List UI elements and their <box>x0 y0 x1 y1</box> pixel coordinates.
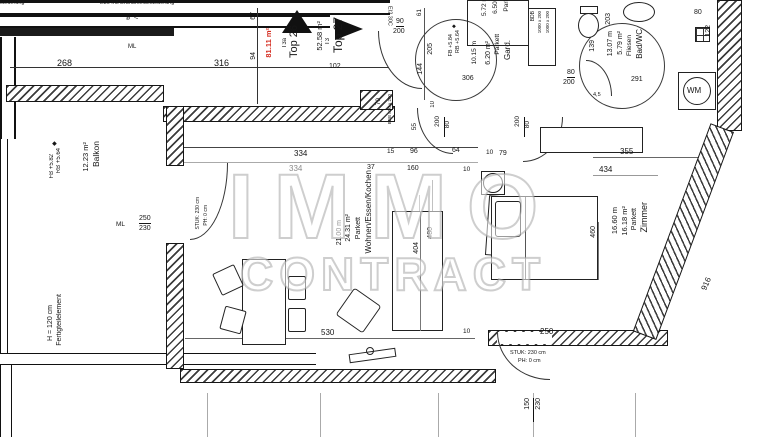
dim: 530 <box>321 329 334 337</box>
unit-top26-area: 81.11 m² <box>265 28 273 58</box>
level-fb-balkon: FB +5.82 <box>49 154 55 179</box>
dim: 79 <box>499 150 507 157</box>
dim: 250 <box>540 328 553 336</box>
note-corner: steuerung <box>0 1 24 7</box>
dim: 334 <box>289 165 302 173</box>
room-gard-perimeter: 10.15 m <box>472 41 479 65</box>
kitchen-sink-bowl <box>483 173 503 193</box>
room-zimmer-name: Zimmer <box>640 202 649 233</box>
room-zimmer-area: 16.18 m² <box>621 206 629 236</box>
dim: 10 <box>463 167 470 174</box>
toilet-icon <box>578 13 599 38</box>
wall-balcony-top <box>6 85 164 102</box>
sink-icon <box>623 2 655 22</box>
room-bad-perimeter: 13.07 m <box>607 31 614 56</box>
level-rb: RB +5.64 <box>456 30 462 53</box>
unit-top27-name: Top 27 <box>332 17 344 53</box>
dim-dropper <box>320 393 321 437</box>
unit-top27-area: 52.58 m² <box>316 21 324 51</box>
dim-line <box>593 175 658 176</box>
floor-plan: E30 mit Brandmeldesteuerung steuerung 26… <box>0 0 770 437</box>
level-diamond: ◆ <box>452 23 457 29</box>
dim: 122 <box>705 25 712 37</box>
note-ml-top: ML <box>128 44 136 50</box>
note-ph-left: PH: 0 cm <box>204 205 209 226</box>
partition-living-zimmer <box>0 365 12 437</box>
room-bad-floor: Fliesen <box>627 35 634 56</box>
kitchen-counter-line <box>420 211 421 331</box>
room-bad-name: Bad/WC <box>636 29 644 59</box>
dim: 67 <box>250 12 257 20</box>
level-fb: FB +5.84 <box>449 34 455 56</box>
dim: 480 <box>427 227 434 239</box>
note-ml-window: ML <box>116 222 125 229</box>
door-opening-bad <box>564 98 592 114</box>
dim: 144 <box>417 63 424 75</box>
bdb-row: 1000 x 200 <box>546 11 551 33</box>
bdb-row: 1000 x 200 <box>538 11 543 33</box>
door-opening-zimmer <box>514 98 542 114</box>
dim: 291 <box>631 76 643 83</box>
room-zimmer-perimeter: 16.60 m <box>611 207 619 234</box>
bed-line <box>525 197 526 279</box>
dim: 316 <box>214 59 229 68</box>
dim-diagonal: 916 <box>700 276 713 291</box>
dim: 306 <box>462 75 474 82</box>
dim: 460 <box>590 226 597 238</box>
chair <box>212 264 244 296</box>
armchair <box>336 288 382 334</box>
unit-top26-name: Top 26 <box>289 25 300 58</box>
wall-left-lower <box>166 243 184 369</box>
dim-window-230: 230 <box>139 225 151 232</box>
dim-window-250: 250 <box>139 215 151 224</box>
dim: 64 <box>452 147 460 154</box>
dim-door-200: 200 <box>563 79 575 86</box>
pillow <box>495 201 521 237</box>
note-stuk-left: STUK: 230 cm <box>196 197 201 230</box>
dim: 334 <box>294 150 307 158</box>
dim: 80 <box>694 9 702 16</box>
wall-living-bottom <box>180 369 496 383</box>
dim-door-80: 80 <box>525 121 532 128</box>
dim-dropper <box>438 393 439 437</box>
dim: 160 <box>407 165 419 172</box>
room-abstell-perimeter: 6.50 m <box>493 0 500 14</box>
dim-door-80: 80 <box>445 121 452 128</box>
dim: 55 <box>412 123 419 130</box>
frac-line-vert <box>533 398 534 422</box>
dim: 96 <box>410 148 418 155</box>
dim: 65 <box>126 13 132 20</box>
dim: 15 <box>387 149 394 156</box>
dim-window-230: 230 <box>535 398 542 410</box>
dim-line <box>593 157 713 158</box>
kitchen-counter <box>392 211 443 331</box>
dim: 203 <box>605 13 612 25</box>
dim-door-200: 200 <box>515 116 522 127</box>
note-fire-rating: EI2 30C <box>386 6 392 26</box>
room-gard-floor: Parkett <box>495 34 502 55</box>
level-rb-balkon: RB +5.64 <box>56 148 62 173</box>
dim: 404 <box>413 242 420 254</box>
dim: 10 <box>430 101 436 108</box>
note-ph-right: PH: 0 cm <box>518 359 541 365</box>
wall-corridor-top <box>0 0 390 15</box>
wall-left-upper <box>166 106 184 166</box>
dim-door-90: 90 <box>396 18 404 27</box>
room-balkon-name: Balkon <box>92 141 101 167</box>
sideboard-knob <box>366 347 374 355</box>
dim-door-200: 200 <box>393 28 405 35</box>
chair <box>288 276 306 300</box>
room-wohnen-floor: Parkett <box>355 217 362 239</box>
dim: 355 <box>620 148 633 156</box>
dim-dropper <box>635 393 636 437</box>
dim: 139 <box>589 40 596 52</box>
note-stuk-right: STUK: 230 cm <box>510 351 546 357</box>
room-wohnen-name: Wohnen/Essen/Kochen <box>365 170 373 253</box>
dim-line <box>257 8 258 104</box>
dim-dropper <box>207 393 208 437</box>
dim-window-150: 150 <box>524 398 531 410</box>
chair <box>288 308 306 332</box>
room-gard-name: Gard. <box>504 40 512 60</box>
note-e30: E30 mit Brandmeldesteuerung <box>100 1 174 7</box>
level-diamond: ◆ <box>52 140 58 147</box>
partition-gard-bad <box>0 139 8 241</box>
dim: 4,5 <box>593 93 601 99</box>
partition-hall-horizontal <box>0 353 316 365</box>
washing-machine-label: WM <box>687 87 701 95</box>
dim: 102 <box>329 63 341 70</box>
dim: 70 <box>376 98 383 105</box>
dim: 434 <box>599 166 612 174</box>
wall-top-right <box>0 15 330 28</box>
dim: 268 <box>57 59 72 68</box>
dim-line <box>185 338 475 339</box>
dim: 205 <box>427 43 434 55</box>
note-fertigteil-h: H = 120 cm <box>47 305 54 341</box>
room-wohnen-perimeter: 21.00 m <box>336 220 343 245</box>
room-abstell-area: 5.72 m² <box>482 0 489 16</box>
partition-bad-right <box>0 241 8 353</box>
dining-table <box>242 259 286 345</box>
dim-door-80: 80 <box>567 69 575 78</box>
room-abstell-floor: Parkett <box>504 0 511 12</box>
dim: 70 <box>134 13 140 20</box>
dim: 10 <box>463 329 470 336</box>
bdb-green-label: BDB 800 x 200 <box>388 94 393 124</box>
dim: 94 <box>250 52 257 60</box>
dim-door-200: 200 <box>435 116 442 127</box>
note-fertigteil: Fertigteilelement <box>56 294 63 346</box>
dim: 10 <box>486 150 493 157</box>
bdb-header: BDB <box>531 11 536 21</box>
room-wohnen-area: 24.31 m² <box>345 214 352 242</box>
room-bad-area: 5.79 m² <box>617 31 624 55</box>
room-balkon-area: 12.23 m² <box>82 142 90 172</box>
dim-line <box>598 222 599 280</box>
wall-right-outer <box>717 0 742 131</box>
room-zimmer-floor: Parkett <box>631 208 638 230</box>
toilet-tank-icon <box>580 6 598 14</box>
dim: 61 <box>417 9 424 16</box>
room-gard-area: 6.20 m² <box>485 41 492 65</box>
wall-balcony-bottom <box>0 28 174 36</box>
